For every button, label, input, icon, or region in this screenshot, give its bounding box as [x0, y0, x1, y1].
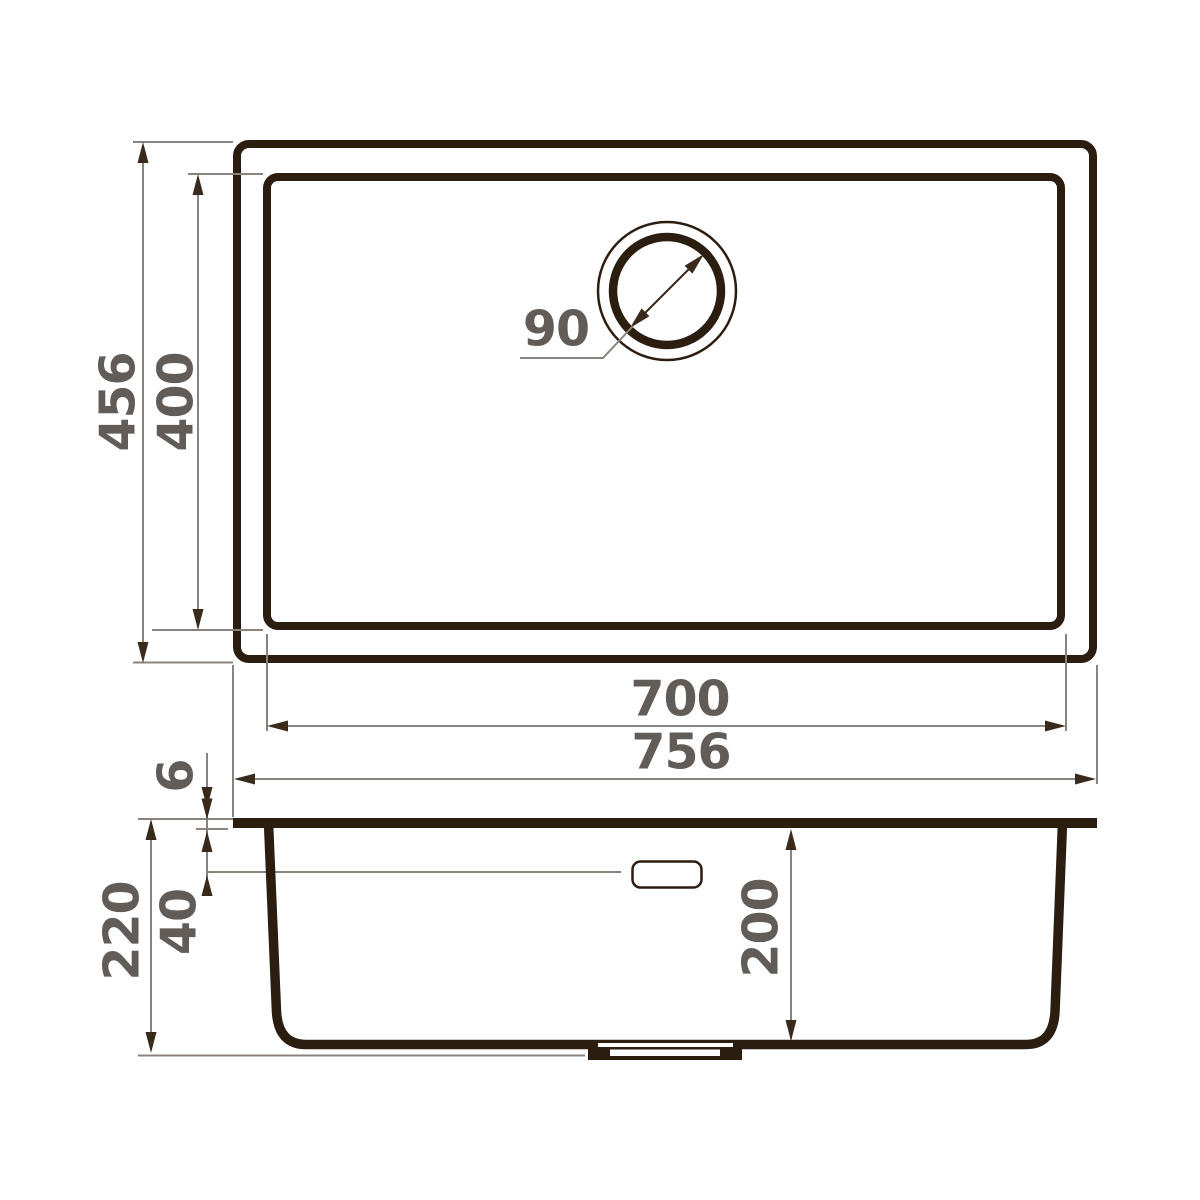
- dim-200-arrow-down: [786, 1020, 797, 1041]
- dim-456-arrow-up: [138, 142, 149, 163]
- dim-label-inner-height: 400: [148, 352, 205, 451]
- dim-6-arrow-up: [202, 831, 213, 852]
- dim-label-overflow-drop: 40: [151, 889, 208, 955]
- drawing-svg: 90 456 400 700: [0, 0, 1200, 1200]
- dim-400-arrow-down: [193, 609, 204, 630]
- side-view-rim-bar: [233, 818, 1097, 828]
- top-view-bowl-outline: [267, 177, 1061, 626]
- dim-400-arrow-up: [193, 174, 204, 195]
- dim-label-rim-thickness: 6: [148, 759, 205, 792]
- dim-400: 400: [148, 174, 264, 630]
- dim-200: 200: [733, 829, 797, 1041]
- dim-label-drain-diameter: 90: [523, 301, 589, 358]
- dim-6-arrow-down: [202, 799, 213, 820]
- dim-700: 700: [267, 634, 1066, 732]
- drain-flange-slot-lower: [610, 1050, 720, 1057]
- side-view: 6 40 220 200: [94, 753, 1098, 1060]
- sink-technical-drawing: 90 456 400 700: [0, 0, 1200, 1200]
- top-view: 90 456 400 700: [90, 142, 1098, 817]
- dim-700-arrow-left: [267, 721, 288, 732]
- dim-220-arrow-up: [146, 819, 157, 840]
- dim-label-overall-width: 756: [631, 724, 730, 781]
- dim-220: 220: [94, 819, 157, 1053]
- drain-flange-slot-upper: [598, 1043, 733, 1047]
- dim-label-bowl-depth: 200: [733, 878, 790, 977]
- dim-456-arrow-down: [138, 642, 149, 663]
- dim-label-overall-height: 456: [90, 352, 147, 451]
- side-view-bowl-outline: [269, 823, 1063, 1045]
- dim-220-arrow-down: [146, 1032, 157, 1053]
- dim-label-overall-depth: 220: [94, 881, 151, 980]
- dim-756-arrow-right: [1075, 774, 1096, 785]
- dim-200-arrow-up: [786, 829, 797, 850]
- overflow-opening: [633, 862, 702, 888]
- dim-6-and-40: 6 40: [148, 753, 213, 955]
- dim-700-arrow-right: [1045, 721, 1066, 732]
- dim-756-arrow-left: [234, 774, 255, 785]
- dim-label-inner-width: 700: [630, 671, 729, 728]
